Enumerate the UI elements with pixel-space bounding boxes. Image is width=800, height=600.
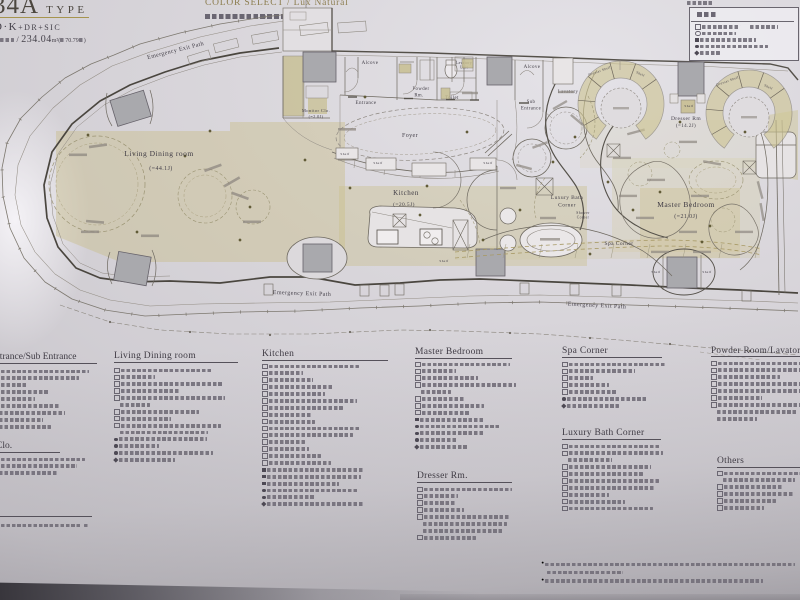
- svg-text:Shelf: Shelf: [439, 259, 449, 263]
- svg-text:Kitchen: Kitchen: [393, 189, 419, 197]
- svg-text:Corner: Corner: [558, 203, 576, 209]
- svg-text:Entrance: Entrance: [356, 101, 377, 106]
- svg-text:Living Dining room: Living Dining room: [124, 149, 193, 158]
- svg-text:(=21.0J): (=21.0J): [674, 213, 697, 220]
- svg-text:(=14.2J): (=14.2J): [676, 124, 696, 129]
- svg-text:Shelf: Shelf: [340, 152, 350, 156]
- svg-text:Shower: Shower: [576, 211, 590, 215]
- svg-text:Entrance: Entrance: [521, 107, 541, 112]
- svg-text:Shelf: Shelf: [684, 104, 694, 108]
- svg-text:Rm.: Rm.: [414, 94, 423, 99]
- svg-text:Monitor Clo.: Monitor Clo.: [302, 108, 330, 113]
- svg-text:Dresser Rm: Dresser Rm: [671, 116, 701, 122]
- svg-text:Emergency Exit Path: Emergency Exit Path: [273, 290, 332, 298]
- svg-text:Emergency Exit Path: Emergency Exit Path: [568, 301, 627, 310]
- svg-text:(=44.1J): (=44.1J): [149, 165, 172, 172]
- svg-text:Powder: Powder: [412, 87, 429, 92]
- svg-text:Master Bedroom: Master Bedroom: [657, 200, 715, 209]
- svg-text:(=2.0J): (=2.0J): [309, 114, 324, 119]
- svg-text:Alcove: Alcove: [524, 65, 541, 70]
- svg-text:Spa Corner: Spa Corner: [605, 241, 634, 247]
- svg-text:Shelf: Shelf: [373, 161, 383, 165]
- svg-text:(=20.5J): (=20.5J): [393, 201, 415, 208]
- svg-text:Shelf: Shelf: [483, 161, 493, 165]
- svg-text:Luxury Bath: Luxury Bath: [551, 195, 583, 201]
- svg-text:Corner: Corner: [577, 216, 590, 220]
- svg-text:Shelf: Shelf: [702, 270, 712, 274]
- svg-text:Alcove: Alcove: [362, 61, 379, 66]
- svg-text:Shelf: Shelf: [651, 270, 661, 274]
- svg-text:Foyer: Foyer: [402, 133, 418, 139]
